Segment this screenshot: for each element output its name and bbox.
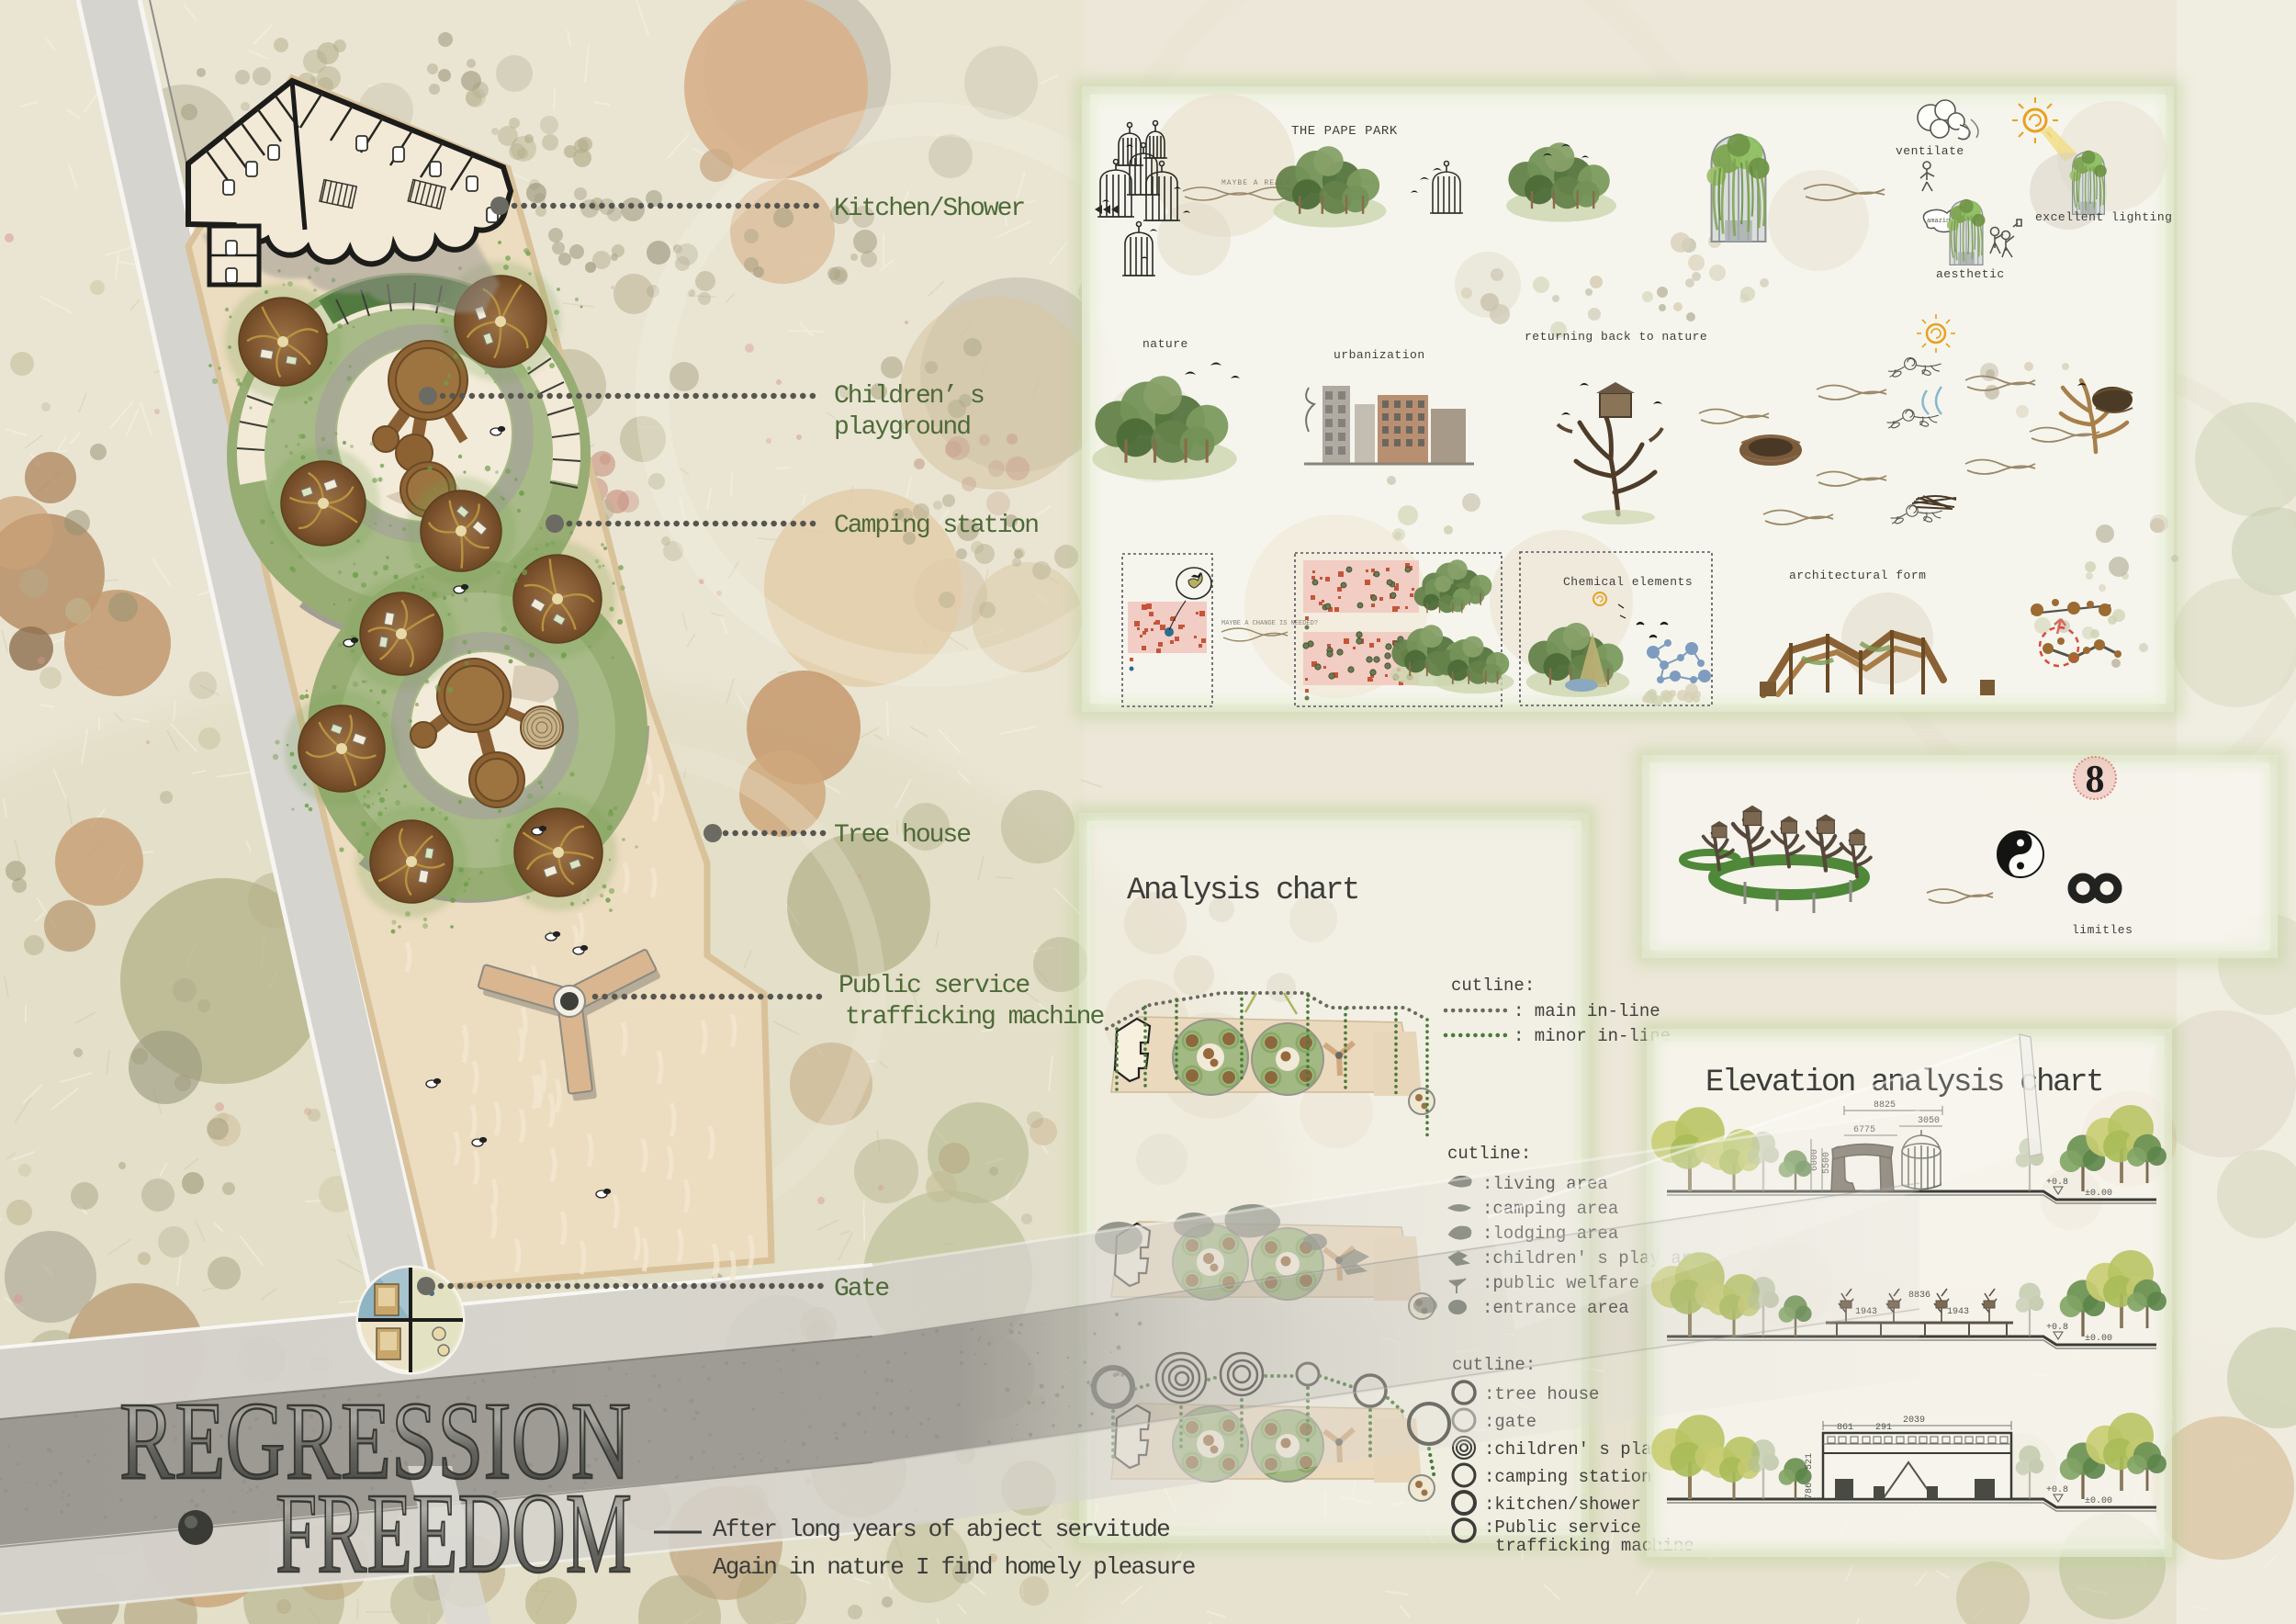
svg-text:Chemical elements: Chemical elements [1563, 575, 1693, 589]
svg-text:±0.00: ±0.00 [2085, 1334, 2112, 1344]
svg-text:MAYBE A CHANGE IS NEEDED?: MAYBE A CHANGE IS NEEDED? [1221, 620, 1318, 627]
svg-text:+0.8: +0.8 [2046, 1323, 2068, 1333]
svg-text:nature: nature [1142, 337, 1188, 351]
svg-text:Tree house: Tree house [834, 821, 970, 850]
svg-text:Analysis chart: Analysis chart [1127, 874, 1358, 908]
svg-text:architectural form: architectural form [1789, 569, 1926, 582]
svg-text:cutline:: cutline: [1451, 976, 1535, 996]
svg-text:+0.8: +0.8 [2046, 1178, 2068, 1188]
svg-text:861: 861 [1837, 1423, 1853, 1433]
svg-text:aesthetic: aesthetic [1936, 267, 2005, 281]
svg-text:521: 521 [1805, 1453, 1815, 1470]
svg-text:trafficking machine: trafficking machine [845, 1003, 1103, 1032]
svg-text:excellent lighting: excellent lighting [2035, 210, 2172, 224]
svg-text:THE PAPE PARK: THE PAPE PARK [1291, 124, 1398, 139]
svg-text:urbanization: urbanization [1334, 348, 1425, 362]
svg-text:+0.8: +0.8 [2046, 1485, 2068, 1495]
svg-text:291: 291 [1875, 1423, 1892, 1433]
svg-text:Kitchen/Shower: Kitchen/Shower [834, 195, 1024, 223]
svg-text:After long years of abject ser: After long years of abject servitude [713, 1516, 1169, 1543]
svg-text::camping station: :camping station [1484, 1467, 1651, 1487]
svg-text:Children’ s: Children’ s [834, 382, 984, 411]
svg-text:Again in nature I find homely: Again in nature I find homely pleasure [713, 1553, 1195, 1581]
svg-text::Public service: :Public service [1484, 1517, 1641, 1538]
svg-text:: main in-line: : main in-line [1514, 1001, 1660, 1021]
svg-text:returning back to nature: returning back to nature [1525, 330, 1707, 344]
svg-text:8: 8 [2086, 759, 2105, 801]
svg-text:786: 786 [1805, 1483, 1815, 1499]
svg-text:playground: playground [834, 413, 970, 442]
svg-text:Public service: Public service [838, 972, 1029, 1000]
svg-text:±0.00: ±0.00 [2085, 1189, 2112, 1199]
svg-text:limitles: limitles [2072, 923, 2133, 937]
svg-text:Gate: Gate [834, 1275, 888, 1303]
svg-text:1943: 1943 [1947, 1307, 1969, 1317]
svg-text::kitchen/shower: :kitchen/shower [1484, 1494, 1641, 1515]
svg-text:FREEDOM: FREEDOM [276, 1469, 632, 1596]
svg-text:2039: 2039 [1903, 1415, 1925, 1426]
svg-text:Camping station: Camping station [834, 512, 1038, 540]
svg-text:ventilate: ventilate [1896, 144, 1964, 158]
svg-text:±0.00: ±0.00 [2085, 1496, 2112, 1506]
svg-text:cutline:: cutline: [1447, 1144, 1531, 1164]
